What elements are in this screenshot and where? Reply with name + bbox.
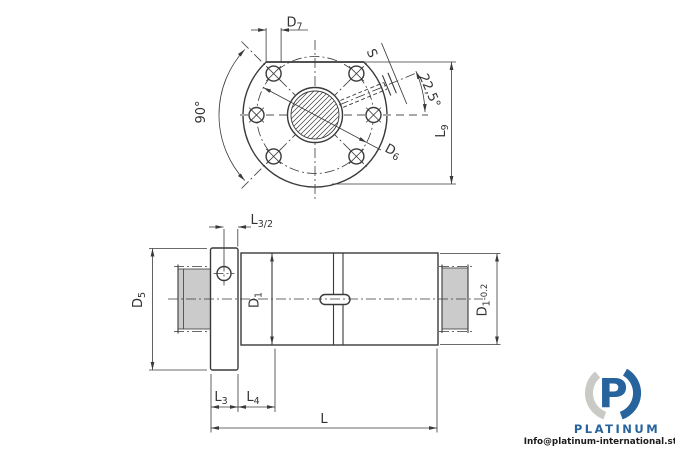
dim-label-d5: D5 <box>131 292 148 308</box>
bolt-hole <box>349 149 364 164</box>
bolt-hole <box>366 108 381 123</box>
contact-email: Info@platinum-international.store <box>524 437 675 447</box>
bolt-hole <box>349 66 364 81</box>
dim-label-l9: L9 <box>434 124 451 137</box>
brand-name: PLATINUM <box>574 422 660 436</box>
logo-letter: P <box>598 371 627 417</box>
page: 90° <box>0 0 675 450</box>
dim-label-22-5deg: 22,5° <box>415 72 443 110</box>
lube-slot <box>320 295 350 305</box>
bolt-hole <box>249 108 264 123</box>
technical-drawing: 90° <box>0 0 675 450</box>
watermark-logo: P PLATINUM Info@platinum-international.s… <box>524 371 675 447</box>
dim-label-l3-half: L3/2 <box>251 213 274 230</box>
dim-label-l3: L3 <box>214 390 227 407</box>
shaft-stub-right <box>442 268 468 329</box>
dim-label-l4: L4 <box>246 390 259 407</box>
dim-label-l: L <box>320 412 328 427</box>
dim-label-s: S <box>363 47 380 60</box>
dim-label-d1-tol: D1-0.2 <box>476 284 493 317</box>
side-view-assembly: D5 D1 L3/2 D1-0.2 L3 L4 L <box>131 213 501 433</box>
dim-label-d7: D7 <box>287 16 303 33</box>
s-leader-line <box>382 43 407 104</box>
bolt-hole <box>266 66 281 81</box>
dim-label-90deg: 90° <box>194 100 209 123</box>
front-view-flange: 90° <box>194 16 456 201</box>
bolt-hole <box>266 149 281 164</box>
dim-label-d6: D6 <box>381 141 403 163</box>
